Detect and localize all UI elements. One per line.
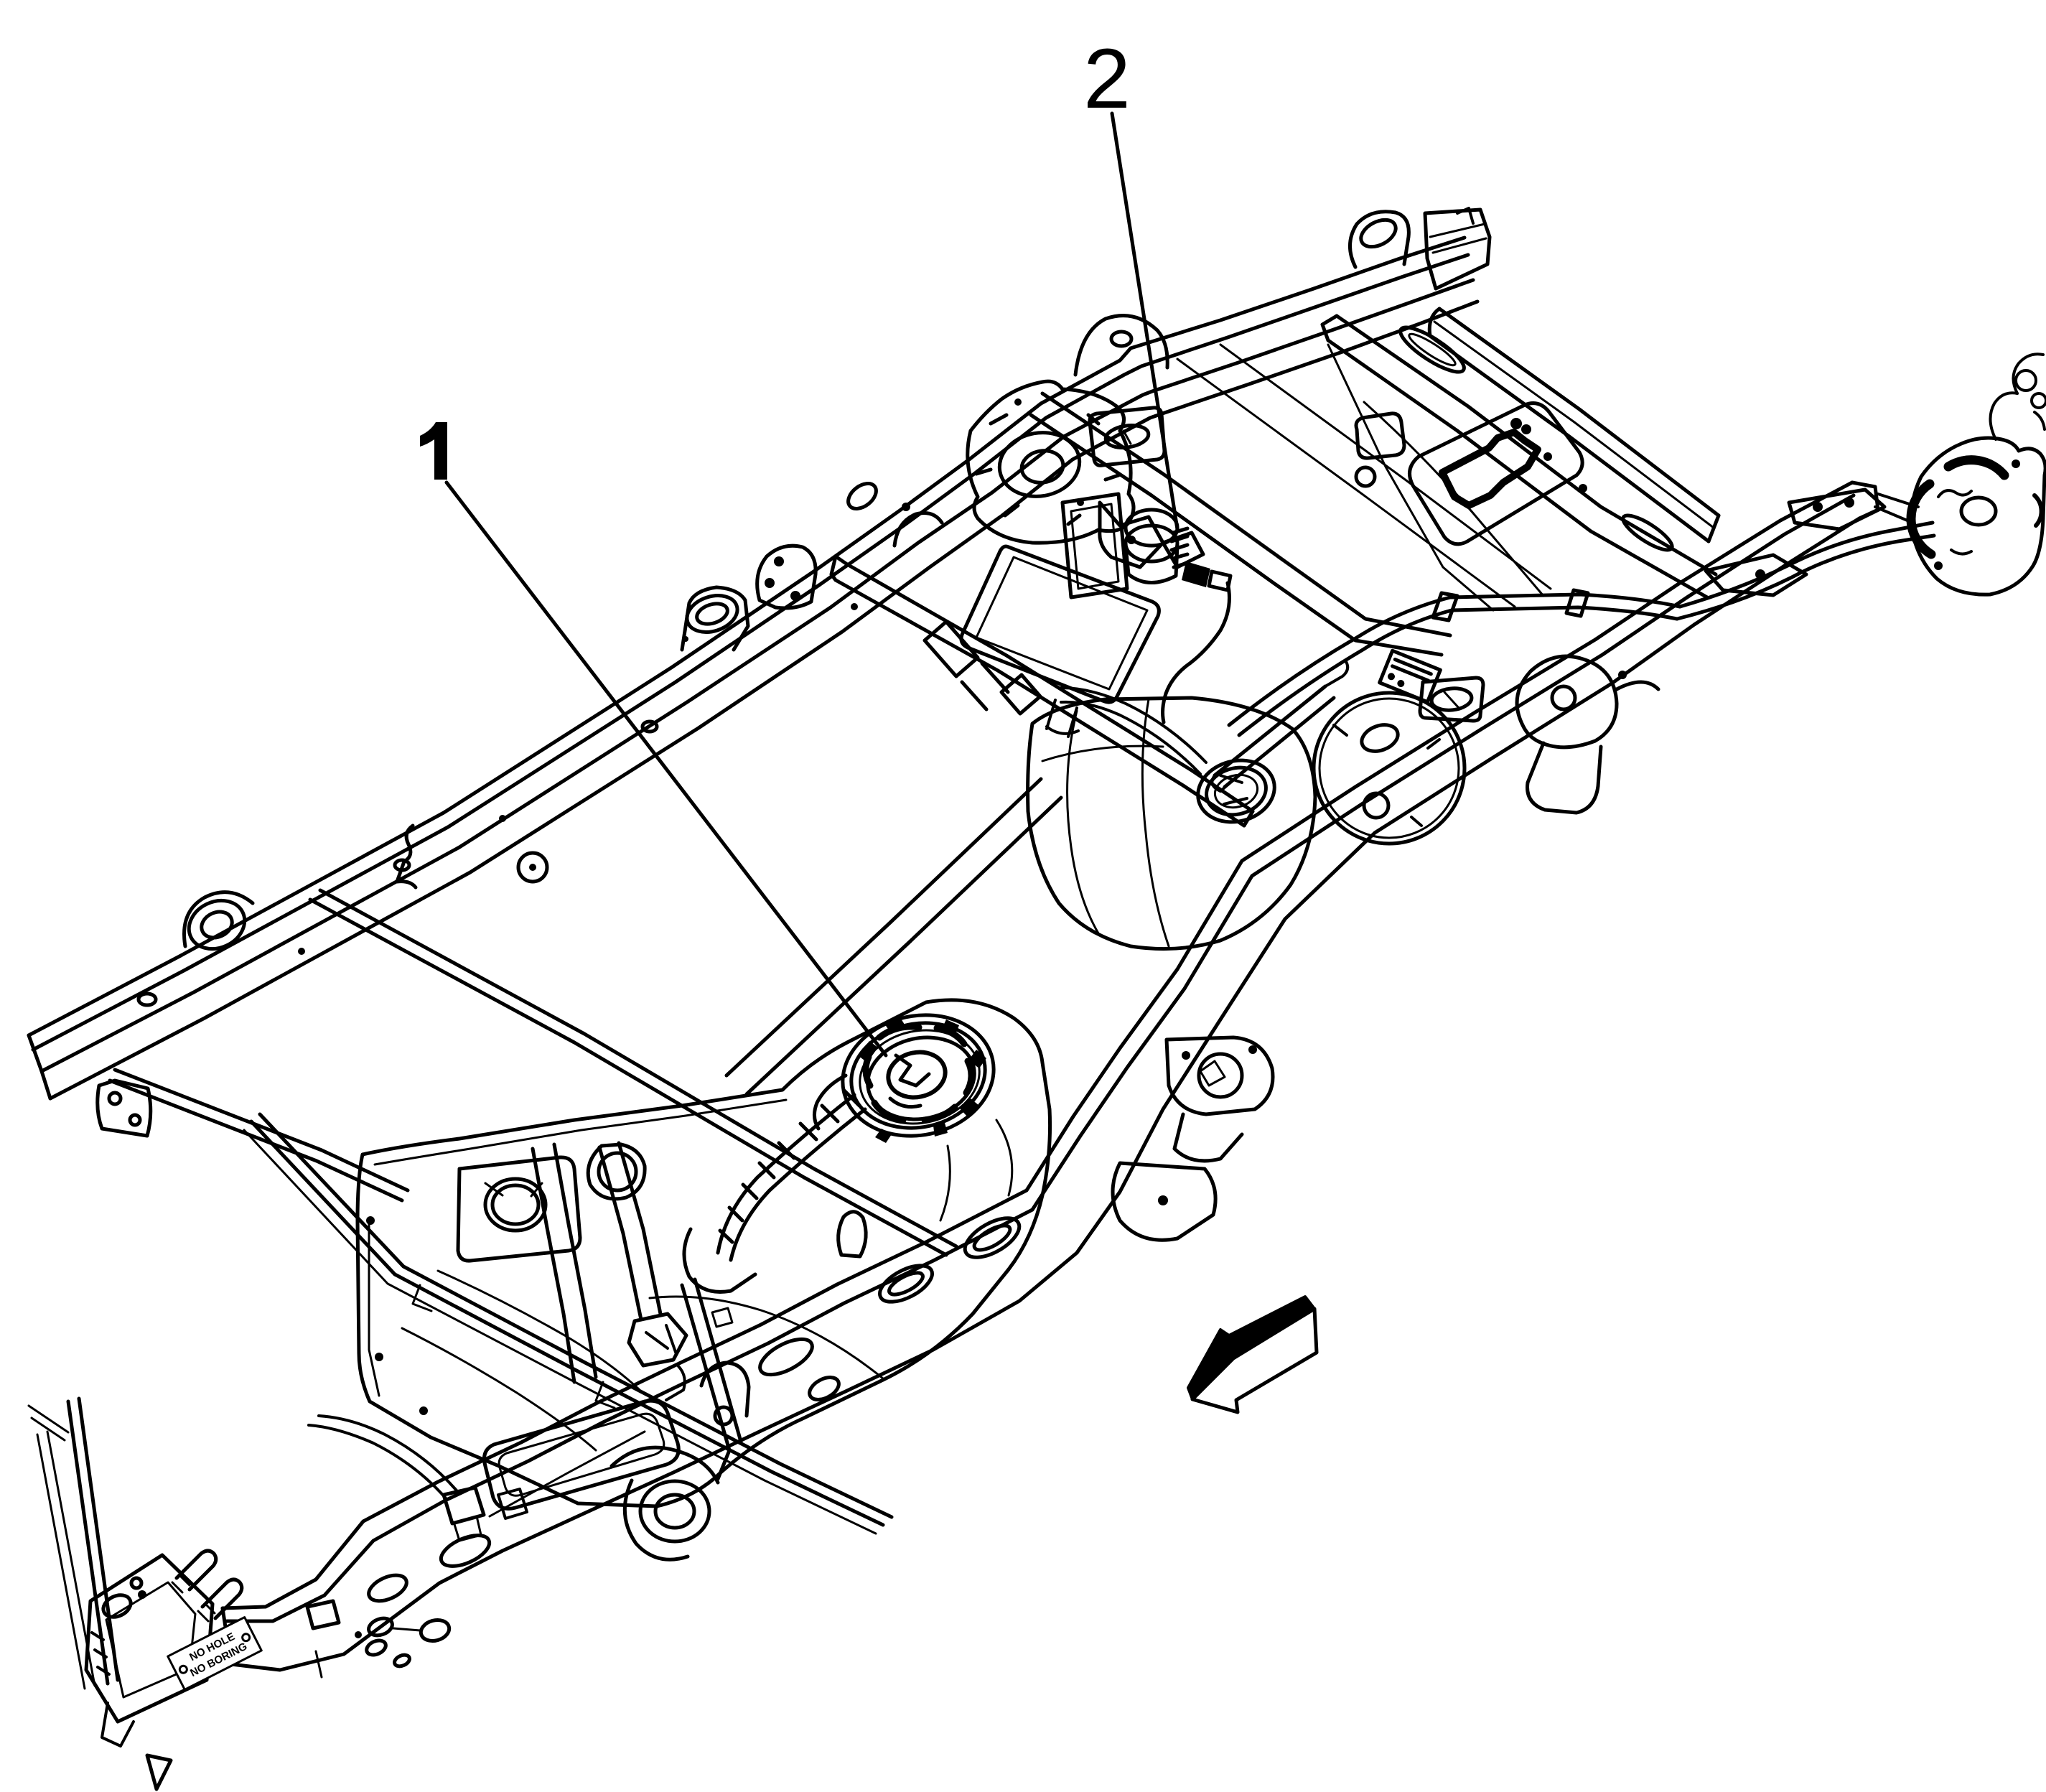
svg-text:2: 2: [1083, 32, 1131, 126]
